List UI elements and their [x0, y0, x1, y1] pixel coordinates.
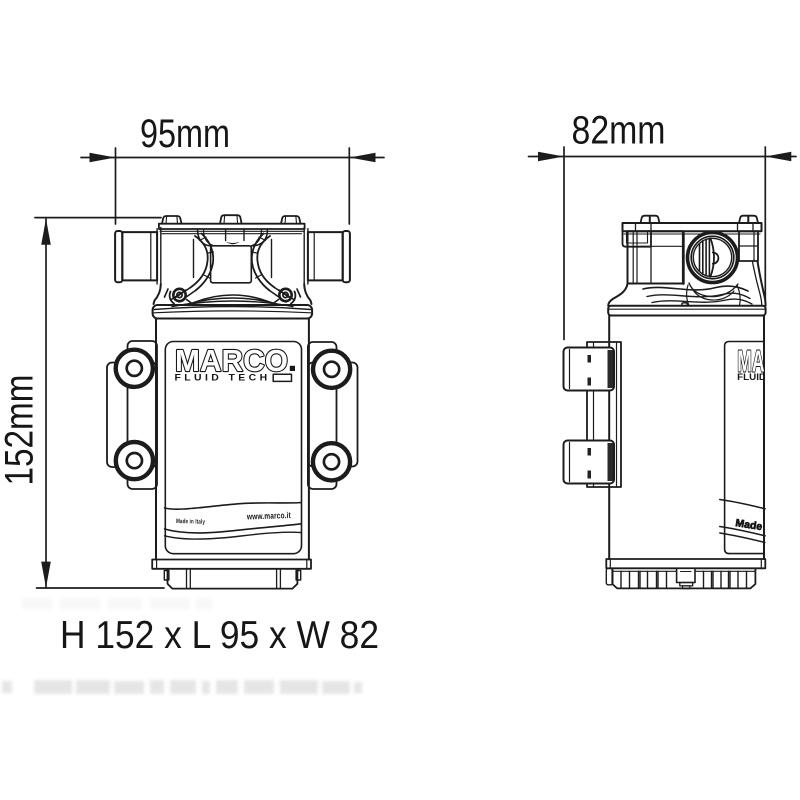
- svg-text:FLUID TE: FLUID TE: [737, 372, 781, 383]
- svg-text:Made in Italy: Made in Italy: [176, 518, 205, 526]
- svg-text:H 152 x L 95 x W 82: H 152 x L 95 x W 82: [60, 614, 379, 657]
- svg-text:FLUID TECH: FLUID TECH: [175, 373, 271, 384]
- svg-text:Made: Made: [735, 517, 764, 533]
- svg-text:www.marco.it: www.marco.it: [246, 510, 291, 522]
- svg-text:82mm: 82mm: [572, 109, 666, 153]
- svg-text:95mm: 95mm: [140, 112, 230, 156]
- svg-text:152mm: 152mm: [0, 375, 42, 486]
